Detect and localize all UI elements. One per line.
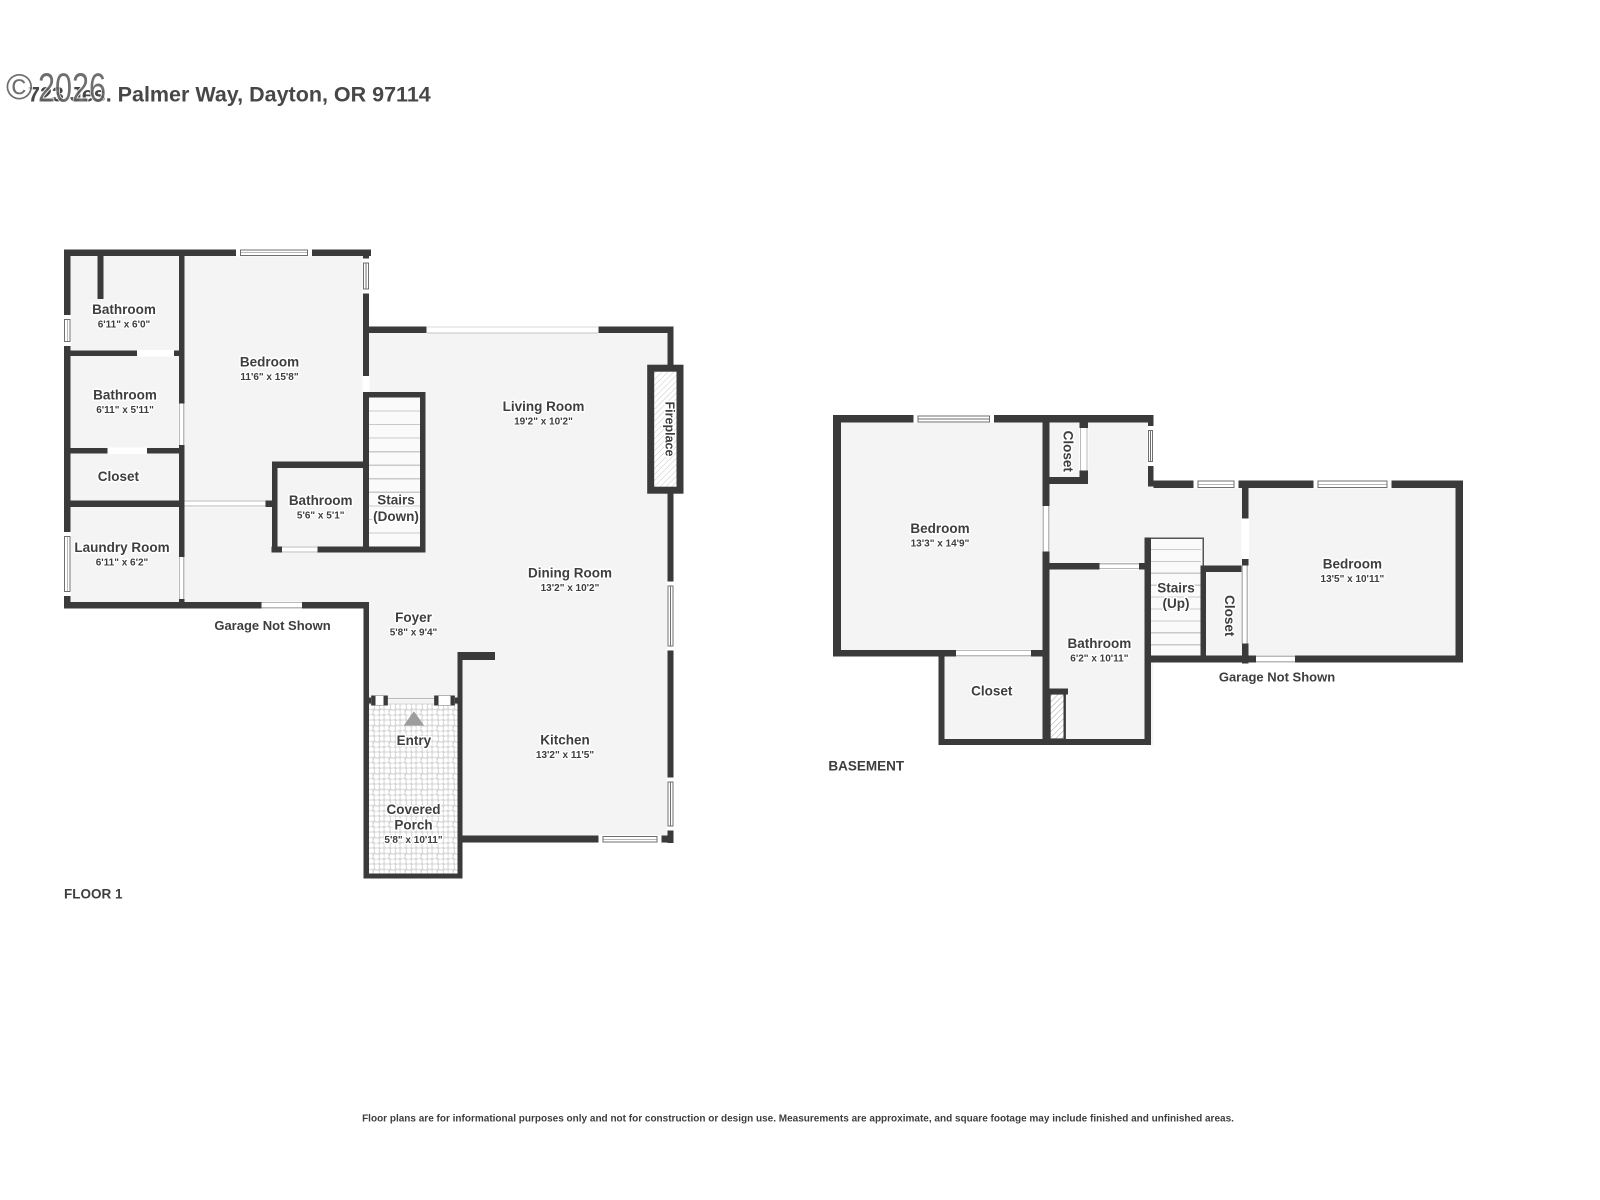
svg-text:(Up): (Up): [1163, 596, 1190, 611]
svg-text:Dining Room: Dining Room: [528, 566, 612, 581]
svg-text:Closet: Closet: [1222, 595, 1237, 637]
svg-text:Porch: Porch: [394, 818, 432, 833]
svg-text:5'8" x 10'11": 5'8" x 10'11": [384, 835, 442, 846]
svg-text:5'8" x 9'4": 5'8" x 9'4": [390, 628, 438, 639]
svg-text:Bathroom: Bathroom: [1068, 636, 1132, 651]
svg-text:Stairs: Stairs: [1157, 581, 1195, 596]
svg-text:Closet: Closet: [971, 684, 1013, 699]
svg-text:13'5" x 10'11": 13'5" x 10'11": [1321, 574, 1385, 585]
svg-text:©: ©: [6, 66, 33, 107]
svg-text:Covered: Covered: [386, 802, 440, 817]
svg-text:Bedroom: Bedroom: [1323, 557, 1382, 572]
svg-text:Garage Not Shown: Garage Not Shown: [1219, 670, 1335, 685]
svg-text:13'2" x 11'5": 13'2" x 11'5": [536, 750, 594, 761]
svg-text:Stairs: Stairs: [377, 493, 415, 508]
svg-text:Bathroom: Bathroom: [289, 493, 353, 508]
svg-text:Bathroom: Bathroom: [93, 388, 157, 403]
svg-text:Laundry Room: Laundry Room: [74, 540, 169, 555]
svg-text:6'2" x 10'11": 6'2" x 10'11": [1070, 654, 1128, 665]
svg-text:6'11" x 6'2": 6'11" x 6'2": [96, 558, 149, 569]
svg-text:Foyer: Foyer: [395, 610, 433, 625]
svg-text:11'6" x 15'8": 11'6" x 15'8": [240, 372, 298, 383]
svg-text:Fireplace: Fireplace: [662, 402, 676, 457]
svg-text:(Down): (Down): [373, 509, 419, 524]
svg-text:2026: 2026: [38, 65, 106, 111]
svg-text:6'11" x 6'0": 6'11" x 6'0": [98, 320, 151, 331]
svg-text:13'2" x 10'2": 13'2" x 10'2": [541, 583, 600, 594]
svg-text:Closet: Closet: [1060, 431, 1075, 473]
svg-text:Kitchen: Kitchen: [540, 733, 590, 748]
svg-text:FLOOR 1: FLOOR 1: [64, 886, 123, 901]
svg-text:Bedroom: Bedroom: [240, 355, 299, 370]
svg-text:13'3" x 14'9": 13'3" x 14'9": [911, 539, 970, 550]
svg-text:Bedroom: Bedroom: [910, 521, 969, 536]
svg-text:Garage Not Shown: Garage Not Shown: [214, 618, 330, 633]
svg-text:BASEMENT: BASEMENT: [828, 759, 905, 774]
svg-text:19'2" x 10'2": 19'2" x 10'2": [514, 417, 573, 428]
svg-text:Closet: Closet: [98, 469, 140, 484]
svg-text:Floor plans are for informatio: Floor plans are for informational purpos…: [362, 1114, 1234, 1125]
svg-text:Entry: Entry: [397, 733, 432, 748]
svg-text:6'11" x 5'11": 6'11" x 5'11": [96, 405, 154, 416]
svg-text:Bathroom: Bathroom: [92, 302, 156, 317]
svg-text:5'6" x 5'1": 5'6" x 5'1": [297, 511, 345, 522]
svg-text:Living Room: Living Room: [503, 399, 585, 414]
